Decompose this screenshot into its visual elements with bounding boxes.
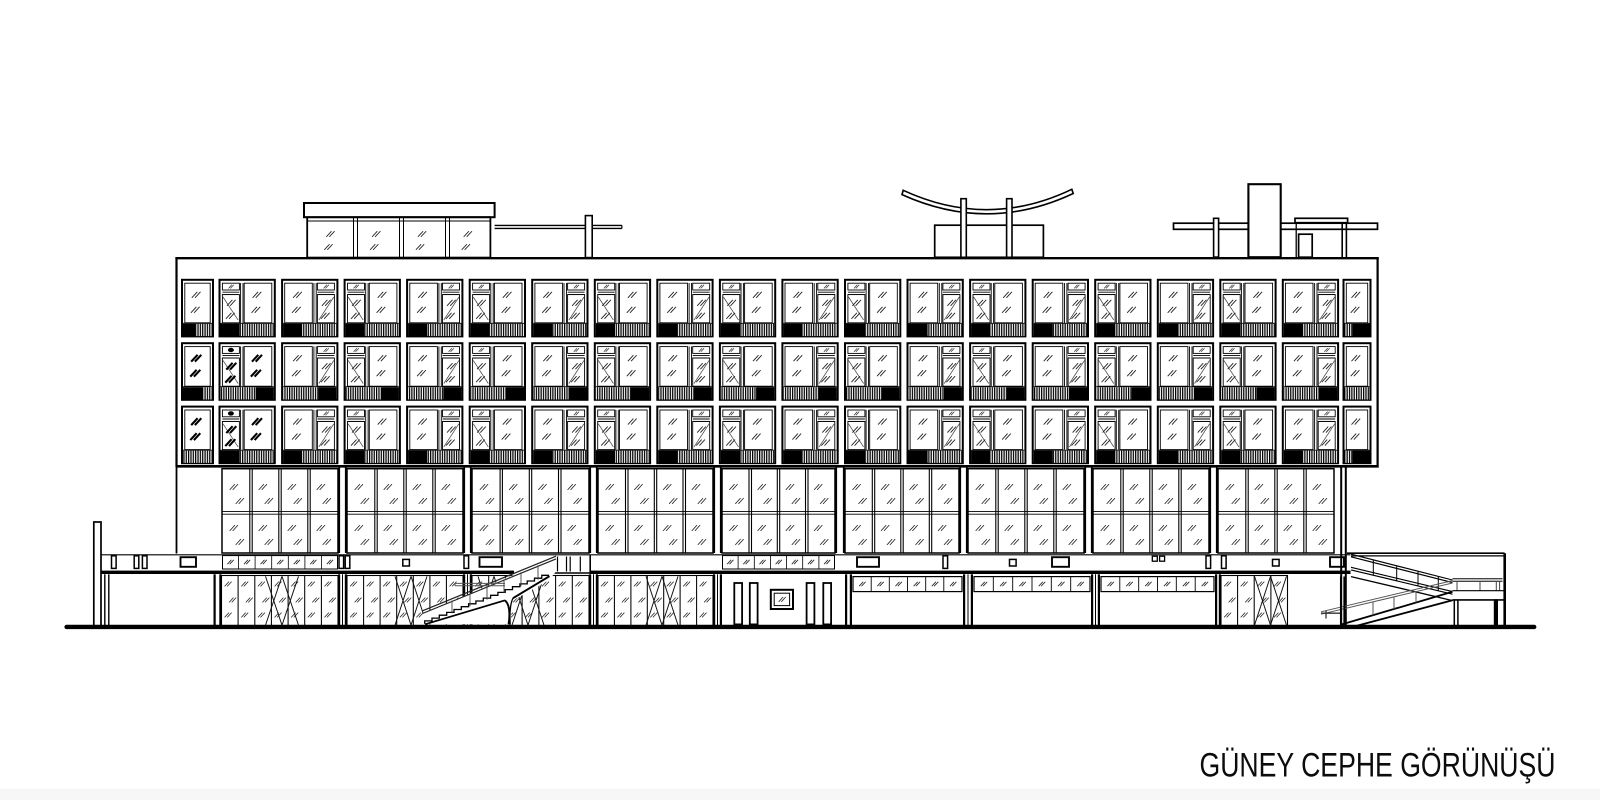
svg-text:GÜNEY CEPHE GÖRÜNÜŞÜ: GÜNEY CEPHE GÖRÜNÜŞÜ [1200, 747, 1556, 785]
